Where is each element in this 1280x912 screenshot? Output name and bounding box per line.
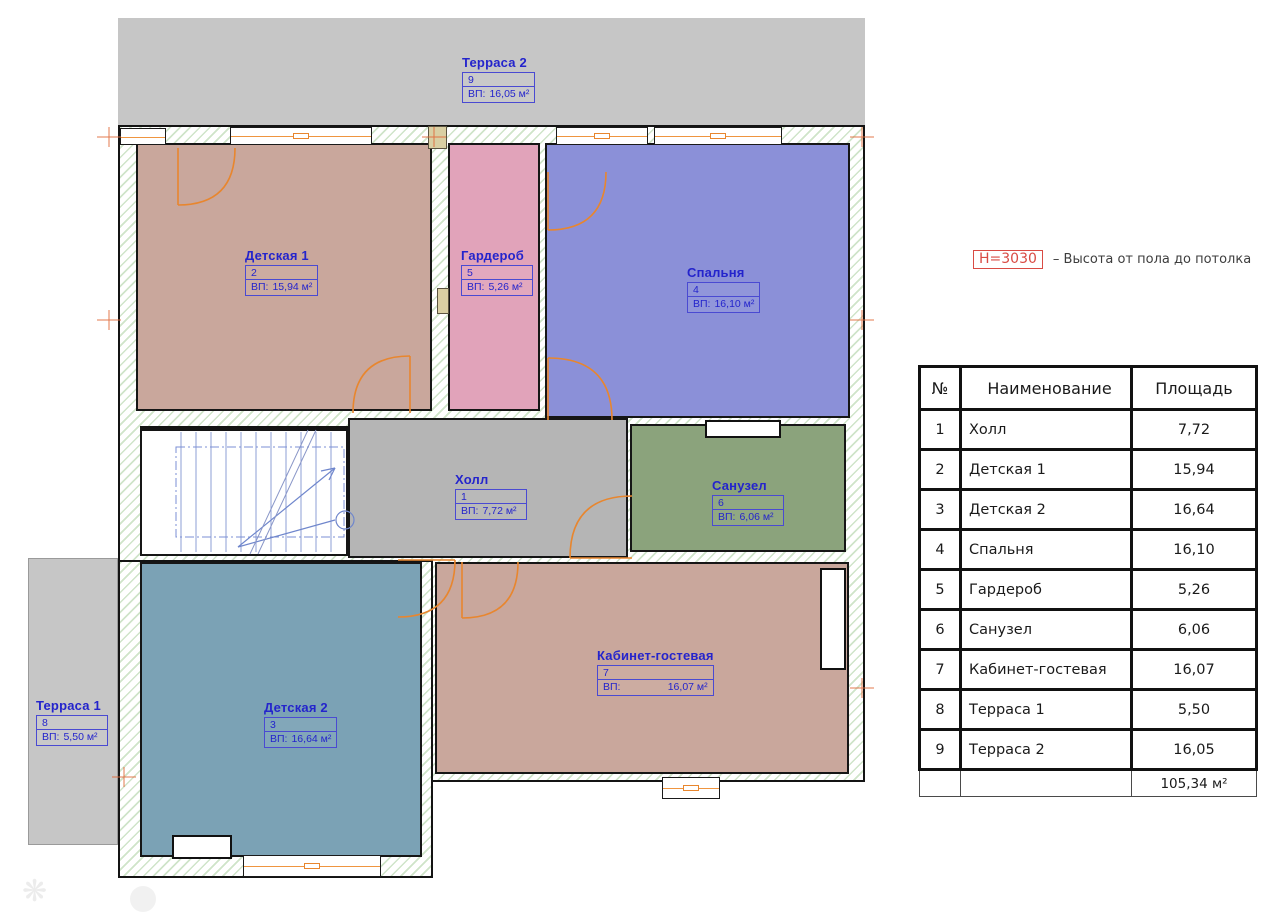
window — [556, 127, 648, 145]
height-legend: H=3030 – Высота от пола до потолка — [973, 250, 1251, 269]
table-row: 8Терраса 15,50 — [920, 690, 1257, 730]
table-row: 6Санузел6,06 — [920, 610, 1257, 650]
header-name: Наименование — [961, 367, 1132, 410]
wall-niche — [172, 835, 232, 859]
label-hall: Холл 1 ВП:7,72 м² — [455, 472, 527, 520]
label-office-guest: Кабинет-гостевая 7 ВП:16,07 м² — [597, 648, 714, 696]
window — [230, 127, 372, 145]
table-row: 7Кабинет-гостевая16,07 — [920, 650, 1257, 690]
table-row: 3Детская 216,64 — [920, 490, 1257, 530]
height-value-box: H=3030 — [973, 250, 1043, 269]
total-area-value: 105,34 м² — [1132, 770, 1257, 797]
label-bedroom: Спальня 4 ВП:16,10 м² — [687, 265, 760, 313]
label-wardrobe: Гардероб 5 ВП:5,26 м² — [461, 248, 533, 296]
table-total-row: 105,34 м² — [920, 770, 1257, 797]
room-staircase — [140, 426, 348, 556]
height-description: – Высота от пола до потолка — [1053, 252, 1251, 267]
table-row: 5Гардероб5,26 — [920, 570, 1257, 610]
label-children-2: Детская 2 3 ВП:16,64 м² — [264, 700, 337, 748]
room-area-table: № Наименование Площадь 1Холл7,72 2Детска… — [918, 365, 1258, 797]
table-header-row: № Наименование Площадь — [920, 367, 1257, 410]
table-row: 4Спальня16,10 — [920, 530, 1257, 570]
label-terrace-2: Терраса 2 9 ВП:16,05 м² — [462, 55, 535, 103]
window — [243, 855, 381, 877]
header-area: Площадь — [1132, 367, 1257, 410]
label-terrace-1: Терраса 1 8 ВП:5,50 м² — [36, 698, 108, 746]
label-children-1: Детская 1 2 ВП:15,94 м² — [245, 248, 318, 296]
watermark-snowflake-icon: ❋ — [22, 874, 47, 909]
post — [428, 126, 447, 149]
table-row: 1Холл7,72 — [920, 410, 1257, 450]
window — [662, 777, 720, 799]
office-wall-niche — [820, 568, 846, 670]
header-number: № — [920, 367, 961, 410]
table-row: 2Детская 115,94 — [920, 450, 1257, 490]
post — [437, 288, 449, 314]
watermark-dot — [130, 886, 156, 912]
window — [654, 127, 782, 145]
bathroom-vent-niche — [705, 420, 781, 438]
table-row: 9Терраса 216,05 — [920, 730, 1257, 770]
label-bathroom: Санузел 6 ВП:6,06 м² — [712, 478, 784, 526]
window — [120, 128, 166, 145]
